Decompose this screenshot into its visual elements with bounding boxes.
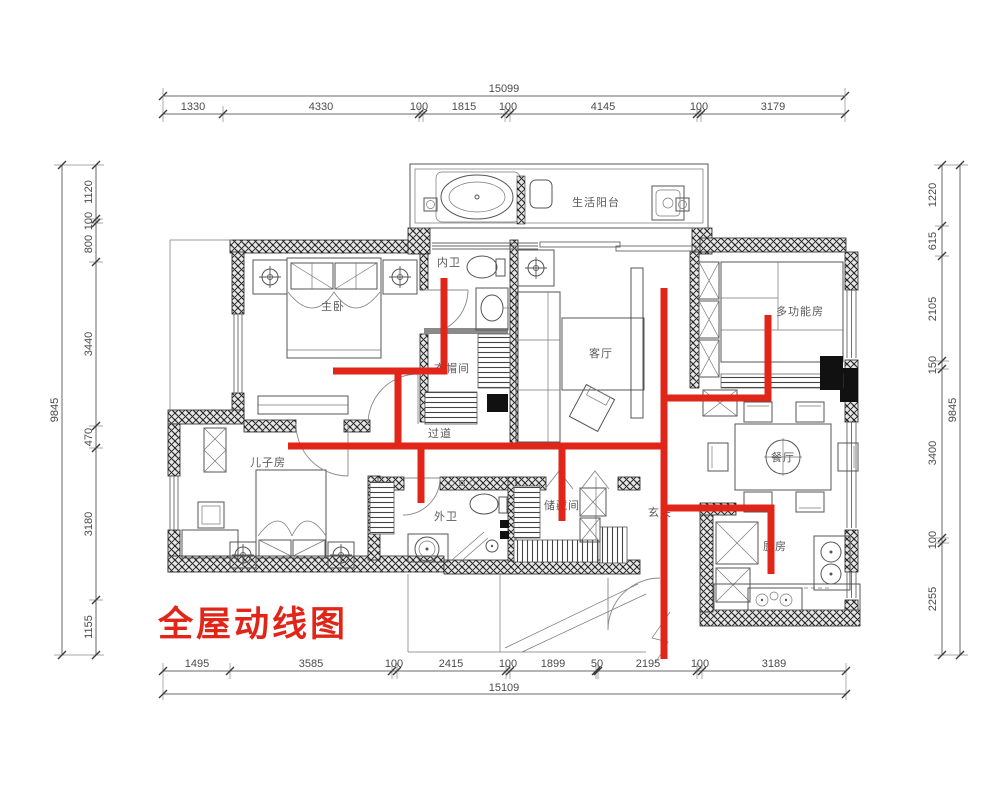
kids-door [296,424,348,476]
dim-top-seg: 3179 [761,101,785,113]
floor-plan-page: 15099 1330 4330 100 1815 100 4145 100 31… [0,0,1000,800]
dim-right-seg: 100 [927,531,939,549]
dim-bottom-seg: 50 [591,658,603,670]
dim-bottom-seg: 100 [499,658,517,670]
dim-bottom-seg: 1899 [541,658,565,670]
room-label-master: 主卧 [321,300,345,313]
dim-bottom-seg: 2195 [636,658,660,670]
dining-chair [744,402,772,422]
dim-right-seg: 3400 [927,441,939,465]
room-label-kids: 儿子房 [250,456,286,469]
toilet [467,256,497,278]
bathtub-deck [436,172,520,222]
living-room: 客厅 [516,250,644,442]
tv-console [631,268,643,418]
toilet [470,494,498,514]
dim-top-total: 15099 [489,83,520,95]
dimension-left: 9845 1120 100 800 3440 470 3180 1155 [49,161,104,659]
ensuite-bathroom: 内卫 [424,255,509,334]
dim-left-seg: 3440 [83,332,95,356]
dim-right-seg: 150 [927,356,939,374]
dim-left-total: 9845 [49,398,61,422]
wash-basin [530,180,552,208]
dim-top-seg: 4330 [309,101,333,113]
dim-top-seg: 100 [499,101,517,113]
floor-plan-canvas: 15099 1330 4330 100 1815 100 4145 100 31… [0,0,1000,800]
entry-hall: 玄关 过道 [428,426,672,630]
dim-bottom-seg: 1495 [185,658,209,670]
dimension-top: 15099 1330 4330 100 1815 100 4145 100 31… [159,83,849,122]
bath-closet [370,482,394,534]
dim-right-total: 9845 [947,398,959,422]
master-bedroom: 主卧 [253,258,418,424]
guest-bathroom: 外卫 [370,478,509,564]
sofa [516,292,560,442]
dim-bottom-seg: 100 [385,658,403,670]
dim-right-seg: 2255 [927,587,939,611]
dining-chair [796,402,824,422]
dim-left-seg: 1155 [83,615,95,639]
dim-bottom-seg: 2415 [439,658,463,670]
bifold-door [545,471,609,489]
dim-right-seg: 2105 [927,297,939,321]
room-label-guest-bath: 外卫 [434,510,458,523]
room-label-ensuite: 内卫 [437,255,461,269]
dimension-bottom: 1495 3585 100 2415 100 1899 50 2195 100 … [159,658,850,700]
dim-bottom-seg: 100 [691,658,709,670]
sink [814,536,850,590]
dimension-right: 9845 1220 615 2105 150 3400 100 2255 [927,161,968,659]
room-label-balcony: 生活阳台 [572,195,620,209]
dim-top-seg: 100 [410,101,428,113]
dining-room: 餐厅 [703,390,858,512]
dining-chair [708,443,728,471]
dim-left-seg: 3180 [83,512,95,536]
balcony-sliding-door [540,242,620,247]
dim-top-seg: 4145 [591,101,615,113]
dim-left-seg: 100 [83,212,95,230]
wardrobe [204,428,226,472]
dim-right-seg: 615 [927,232,939,250]
page-title: 全屋动线图 [158,596,348,647]
cloakroom: 衣帽间 [425,334,510,424]
dining-chair [838,443,858,471]
dim-left-seg: 800 [83,235,95,253]
dim-left-seg: 470 [83,428,95,446]
master-door [368,374,418,424]
balcony: 生活阳台 [410,164,708,228]
dim-left-seg: 1120 [83,180,95,204]
storage-shelf [514,486,540,538]
dim-top-seg: 1330 [181,101,205,113]
wardrobe [478,334,510,388]
dim-right-seg: 1220 [927,183,939,207]
dim-top-seg: 100 [690,101,708,113]
walls [168,228,860,626]
room-label-corridor: 过道 [428,426,452,440]
dim-bottom-seg: 3585 [299,658,323,670]
room-label-dining: 餐厅 [771,450,795,464]
room-label-living: 客厅 [589,346,613,360]
dim-bottom-seg: 3189 [762,658,786,670]
room-label-multifunction: 多功能房 [776,304,824,318]
shoe-cabinet [600,527,627,563]
bathtub [441,175,513,219]
kitchen: 厨房 [714,522,860,610]
dim-bottom-total: 15109 [489,682,520,694]
lounge-chair [569,385,614,432]
dining-chair [796,492,824,512]
dim-top-seg: 1815 [452,101,476,113]
room-label-kitchen: 厨房 [763,540,787,553]
